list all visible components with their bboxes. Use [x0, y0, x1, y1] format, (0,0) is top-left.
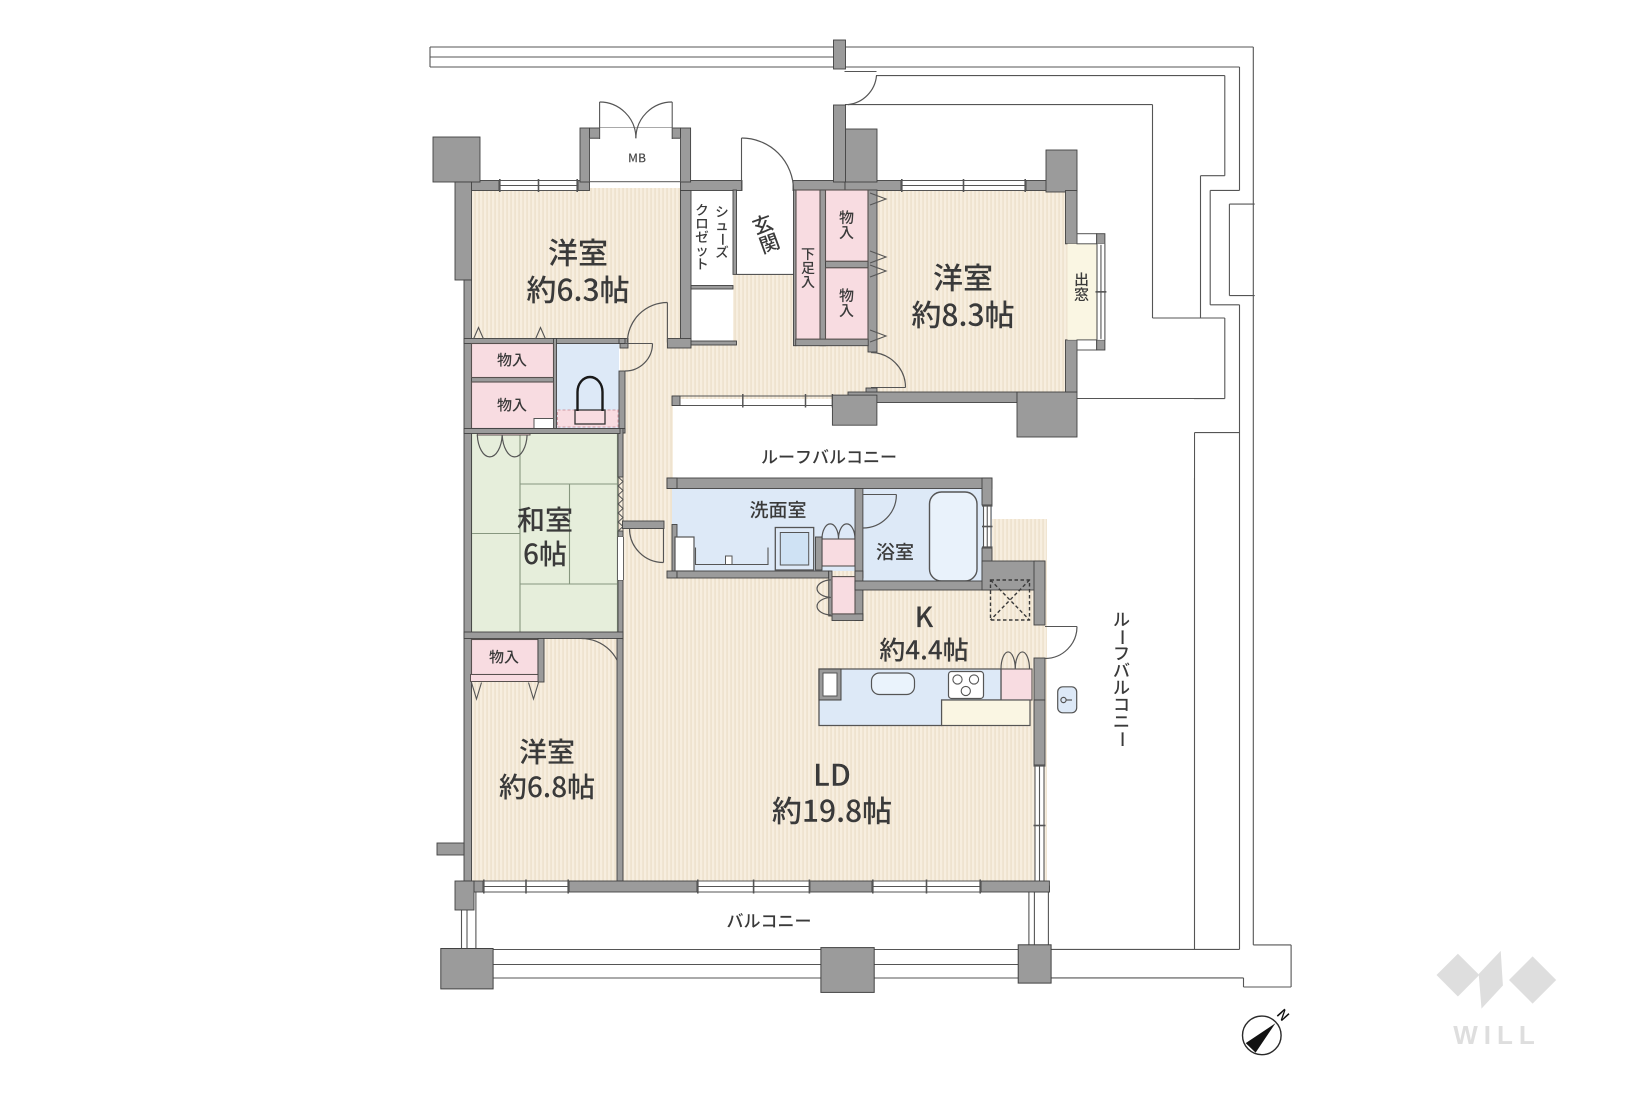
svg-text:WILL: WILL	[1453, 1020, 1541, 1050]
